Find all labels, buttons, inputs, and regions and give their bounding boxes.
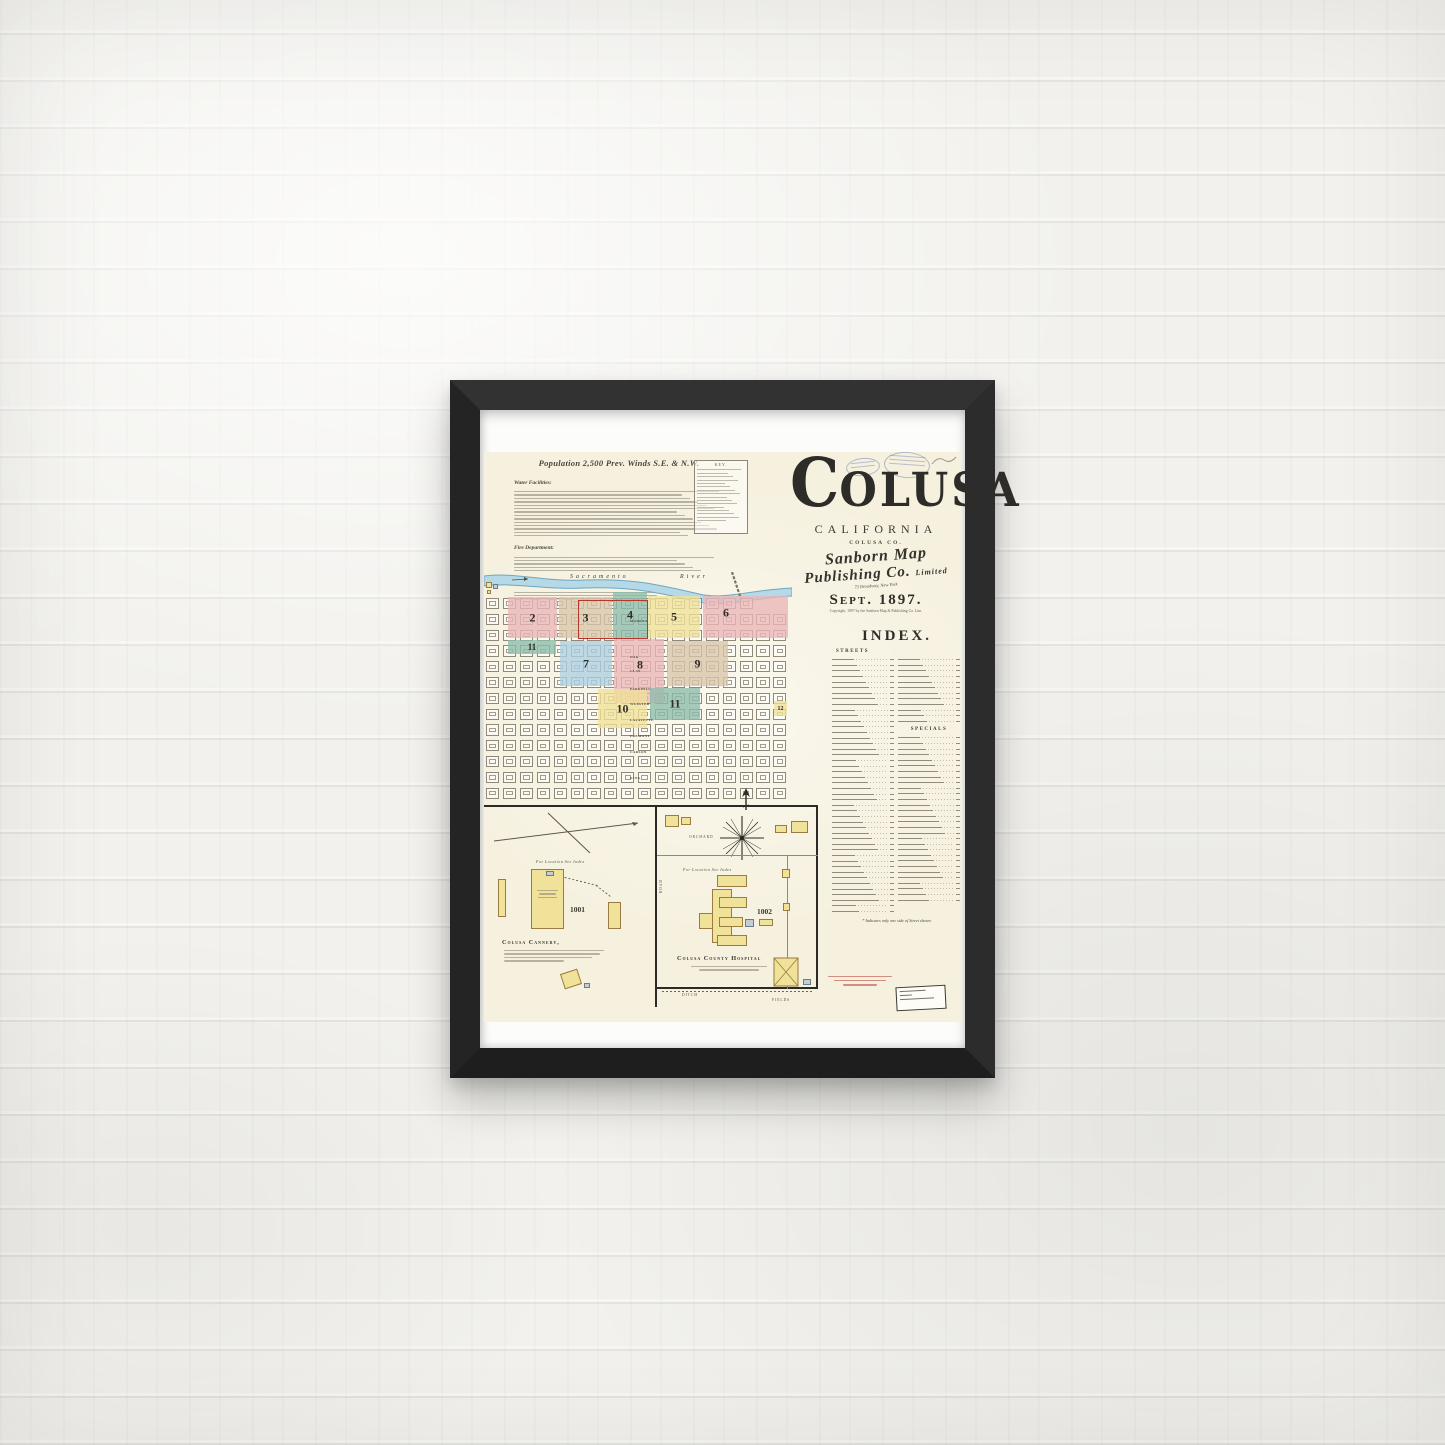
city-block (554, 788, 567, 799)
fine-print-line (514, 532, 680, 533)
state-label: CALIFORNIA (790, 522, 962, 537)
city-block (756, 756, 769, 767)
hospital-caption: Colusa County Hospital (677, 955, 761, 962)
fine-print-line (514, 522, 701, 523)
hospital-inset: ORCHARD (657, 807, 818, 989)
cannery-shed (498, 879, 506, 917)
copyright-line: Copyright, 1897 by the Sanborn Map & Pub… (790, 609, 962, 613)
legend-entry-line (697, 476, 733, 477)
hospital-porch (745, 919, 754, 927)
city-block (706, 709, 719, 720)
legend-key-title: KEY. (695, 462, 747, 467)
picture-frame: Population 2,500 Prev. Winds S.E. & N.W.… (450, 380, 995, 1078)
sheet-number: 6 (723, 606, 729, 621)
index-section: INDEX. STREETS SPECIALS * Indicates only… (832, 628, 962, 923)
sheet-number: 7 (583, 656, 589, 671)
city-block (723, 740, 736, 751)
street-label-lafayette: LAFAYETTE (630, 718, 654, 722)
river-label-left: Sacramento (570, 574, 629, 580)
city-block (740, 661, 753, 672)
city-block (520, 724, 533, 735)
city-block (773, 645, 786, 656)
cannery-caption-text (504, 948, 608, 962)
city-block (604, 740, 617, 751)
city-block (571, 788, 584, 799)
city-block (520, 788, 533, 799)
orchard-label: ORCHARD (689, 835, 714, 839)
city-block (486, 709, 499, 720)
city-block (486, 772, 499, 783)
hospital-outbuilding (681, 817, 691, 825)
cannery-caption: Colusa Cannery, (502, 939, 560, 946)
index-entry (832, 909, 894, 915)
city-block (537, 661, 550, 672)
city-block (604, 772, 617, 783)
city-block (520, 756, 533, 767)
city-block (503, 661, 516, 672)
fine-print-line (514, 505, 706, 506)
fine-print-line (514, 557, 714, 558)
hospital-ward-b (717, 875, 747, 887)
city-block (554, 772, 567, 783)
hospital-number: 1002 (757, 907, 772, 916)
legend-entry-line (697, 473, 728, 474)
ditch-label: DITCH (682, 993, 698, 997)
city-block (520, 740, 533, 751)
city-block (672, 788, 685, 799)
city-block (655, 740, 668, 751)
city-block (486, 630, 499, 641)
city-block (554, 756, 567, 767)
sheet-number: 9 (695, 656, 701, 671)
legend-entry-line (697, 486, 730, 487)
city-block (503, 756, 516, 767)
city-block (571, 709, 584, 720)
city-block (773, 756, 786, 767)
city-block (740, 677, 753, 688)
legend-entry-line (697, 510, 729, 511)
city-block (756, 693, 769, 704)
fine-print-line (514, 494, 682, 495)
city-title: COLUSA (790, 462, 962, 518)
city-block (773, 788, 786, 799)
hospital-ward-d (719, 897, 747, 908)
city-block (554, 724, 567, 735)
fine-print-line (514, 511, 677, 512)
city-block (503, 693, 516, 704)
city-block (537, 756, 550, 767)
city-block (537, 724, 550, 735)
cannery-warehouse (608, 902, 621, 929)
street-label-webster: WEBSTER (630, 702, 650, 706)
city-block (520, 661, 533, 672)
city-block (723, 756, 736, 767)
hospital-laundry (759, 919, 773, 926)
legend-entry-line (697, 493, 740, 494)
sheet-number: 11 (528, 642, 537, 652)
hospital-outbuilding (665, 815, 679, 827)
legend-key-box: KEY. (694, 460, 748, 534)
city-block (486, 740, 499, 751)
city-block (740, 740, 753, 751)
water-facilities-label: Water Facilities: (514, 480, 552, 486)
city-rest: OLUSA (839, 464, 1021, 518)
city-block (773, 772, 786, 783)
city-plan-map: Sacramento River 2345611789101112 MARKET… (484, 572, 792, 805)
index-entry (898, 719, 960, 725)
roadside-building (782, 869, 790, 878)
hospital-caption-text (691, 964, 771, 971)
fine-print-line (514, 535, 688, 536)
legend-key-entries (695, 469, 747, 521)
cannery-boiler (546, 871, 554, 876)
city-block (773, 661, 786, 672)
city-block (503, 772, 516, 783)
railroad-crossing (492, 811, 647, 853)
legend-entry-line (697, 503, 737, 504)
city-block (655, 756, 668, 767)
city-block (486, 645, 499, 656)
city-block (486, 661, 499, 672)
city-block (773, 740, 786, 751)
city-block (503, 709, 516, 720)
city-block (537, 709, 550, 720)
city-block (604, 756, 617, 767)
city-block (587, 756, 600, 767)
city-block (486, 724, 499, 735)
legend-entry-line (697, 490, 735, 491)
conveyor-line (596, 885, 612, 898)
fields-label: FIELDS (772, 998, 790, 1002)
legend-entry-line (697, 507, 724, 508)
city-block (520, 709, 533, 720)
city-block (740, 724, 753, 735)
legend-entry-line (697, 480, 738, 481)
hospital-ward (719, 917, 743, 927)
index-streets-heading: STREETS (836, 649, 962, 654)
inset-maps: For Location See Index 1001 Colusa Canne… (484, 805, 818, 1005)
legend-entry-line (697, 517, 739, 518)
city-block (486, 598, 499, 609)
city-block (756, 740, 769, 751)
city-block (486, 693, 499, 704)
index-column-2: SPECIALS (898, 657, 960, 914)
index-title: INDEX. (832, 628, 962, 645)
city-block (520, 677, 533, 688)
city-block (740, 709, 753, 720)
city-block (587, 788, 600, 799)
sheet-number: 11 (669, 697, 680, 712)
fine-print-line (514, 567, 693, 568)
index-column-1 (832, 657, 894, 914)
fine-print-line (514, 563, 685, 564)
conveyor-line (564, 877, 597, 886)
water-facilities-text (514, 491, 724, 536)
population-line: Population 2,500 Prev. Winds S.E. & N.W. (514, 458, 724, 468)
fine-print-line (514, 560, 677, 561)
sheet-number: 10 (617, 701, 629, 716)
city-block (740, 772, 753, 783)
city-block (554, 693, 567, 704)
city-block (756, 661, 769, 672)
city-block (723, 709, 736, 720)
waterfront-building (487, 590, 491, 594)
city-block (773, 724, 786, 735)
city-block (503, 740, 516, 751)
city-block (756, 709, 769, 720)
outbuilding (584, 983, 590, 988)
cannery-inset: For Location See Index 1001 Colusa Canne… (484, 807, 655, 1007)
city-block (706, 772, 719, 783)
city-block (520, 772, 533, 783)
city-block (706, 788, 719, 799)
date-line: Sept. 1897. (790, 592, 962, 609)
legend-entry-line (697, 483, 725, 484)
city-block (554, 709, 567, 720)
index-specials-heading: SPECIALS (898, 727, 960, 732)
publisher-suffix: Limited (915, 566, 948, 577)
fine-print-line (514, 528, 717, 529)
city-block (689, 788, 702, 799)
street-label-oak: OAK (630, 655, 639, 659)
street-label-clay: CLAY (630, 669, 641, 673)
fine-print-line (514, 491, 719, 492)
city-block (537, 677, 550, 688)
title-block: COLUSA CALIFORNIA COLUSA CO. Sanborn Map… (790, 464, 962, 613)
ditch-line (662, 991, 812, 992)
city-block (571, 740, 584, 751)
city-block (537, 740, 550, 751)
city-block (706, 693, 719, 704)
city-block (655, 772, 668, 783)
city-block (655, 724, 668, 735)
cannery-location-note: For Location See Index (536, 859, 585, 864)
city-block (486, 677, 499, 688)
city-initial: C (790, 444, 839, 523)
waterfront-building (486, 582, 492, 588)
city-block (621, 788, 634, 799)
city-block (537, 693, 550, 704)
roadside-building (783, 903, 790, 911)
red-ink-stamp (828, 973, 894, 986)
city-block (571, 756, 584, 767)
city-block (503, 788, 516, 799)
legend-entry-line (697, 513, 734, 514)
outbuilding (803, 979, 811, 985)
hospital-rear-hall (717, 935, 747, 946)
city-block (571, 693, 584, 704)
city-block (672, 756, 685, 767)
fire-department-label: Fire Department: (514, 545, 554, 551)
sheet-number: 2 (530, 610, 536, 625)
scale-stamp-box (895, 985, 946, 1012)
city-block (723, 788, 736, 799)
fine-print-line (514, 518, 693, 519)
city-block (689, 724, 702, 735)
city-block (723, 693, 736, 704)
city-block (672, 724, 685, 735)
city-block (706, 756, 719, 767)
city-block (740, 693, 753, 704)
city-block (638, 788, 651, 799)
city-block (571, 772, 584, 783)
sheet-district-6 (703, 596, 788, 638)
city-block (756, 788, 769, 799)
outbuilding (560, 969, 582, 990)
city-block (571, 724, 584, 735)
city-block (689, 756, 702, 767)
city-block (723, 724, 736, 735)
hospital-outbuilding (775, 825, 787, 833)
legend-entry-line (697, 469, 741, 470)
city-block (638, 756, 651, 767)
city-block (723, 772, 736, 783)
city-block (756, 645, 769, 656)
city-block (706, 724, 719, 735)
city-block (604, 788, 617, 799)
legend-entry-line (697, 520, 726, 521)
city-block (740, 645, 753, 656)
city-block (706, 740, 719, 751)
city-block (587, 772, 600, 783)
city-block (503, 724, 516, 735)
city-block (655, 788, 668, 799)
waterfront-building (493, 584, 498, 589)
photo-of-framed-map: Population 2,500 Prev. Winds S.E. & N.W.… (0, 0, 1445, 1445)
city-block (773, 677, 786, 688)
street-label-fremont: FREMONT (630, 734, 650, 738)
city-block (537, 788, 550, 799)
street-label-market: MARKET (630, 619, 648, 623)
sheet-number: 5 (671, 610, 677, 625)
fire-department-text (514, 557, 724, 572)
fine-print-line (514, 525, 709, 526)
city-block (503, 677, 516, 688)
index-entry (898, 897, 960, 903)
cannery-main-building (531, 869, 564, 929)
legend-entry-line (697, 500, 732, 501)
city-block (486, 788, 499, 799)
city-block (486, 614, 499, 625)
fine-print-line (514, 501, 698, 502)
fine-print-line (514, 498, 690, 499)
city-block (587, 740, 600, 751)
city-block (756, 677, 769, 688)
hospital-location-note: For Location See Index (683, 867, 732, 872)
inset-road-line (657, 855, 818, 856)
street-label-king: KING (630, 776, 641, 780)
cannery-number: 1001 (570, 905, 585, 914)
city-block (756, 772, 769, 783)
city-block (689, 740, 702, 751)
fine-print-line (514, 515, 685, 516)
index-footnote: * Indicates only one side of Street show… (832, 918, 962, 923)
street-label-parkhill: PARKHILL (630, 687, 651, 691)
street-label-carson: CARSON (630, 750, 647, 754)
city-block (672, 740, 685, 751)
city-block (537, 772, 550, 783)
legend-entry-line (697, 497, 727, 498)
hospital-outbuilding (791, 821, 808, 833)
road-label: ROAD (659, 879, 663, 893)
hospital-west-wing (699, 913, 713, 929)
poster-margin: Population 2,500 Prev. Winds S.E. & N.W.… (480, 410, 965, 1048)
sanborn-map-sheet: Population 2,500 Prev. Winds S.E. & N.W.… (484, 452, 961, 1022)
sheet-number: 12 (778, 706, 784, 712)
city-block (740, 756, 753, 767)
city-block (520, 693, 533, 704)
city-block (621, 756, 634, 767)
city-block (486, 756, 499, 767)
barn-building (773, 957, 799, 987)
city-block (672, 772, 685, 783)
city-block (689, 772, 702, 783)
river-label-right: River (680, 574, 708, 580)
city-block (554, 740, 567, 751)
city-block (756, 724, 769, 735)
fine-print-line (514, 508, 714, 509)
